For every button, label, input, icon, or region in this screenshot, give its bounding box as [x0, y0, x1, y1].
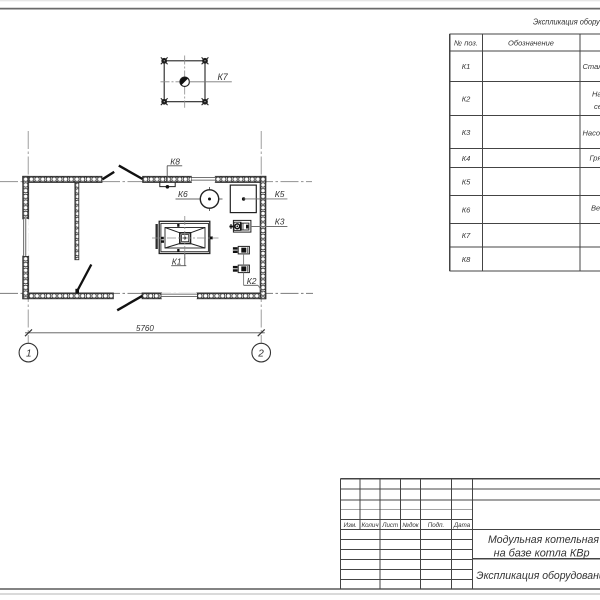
svg-text:Лист: Лист	[381, 522, 398, 529]
svg-text:№док: №док	[402, 522, 420, 529]
svg-text:Грязевик: Грязевик	[590, 154, 600, 163]
svg-text:Колич: Колич	[361, 522, 379, 529]
svg-text:К2: К2	[462, 94, 471, 103]
svg-text:5760: 5760	[136, 324, 154, 333]
svg-text:Обозначение: Обозначение	[508, 39, 554, 48]
svg-text:К2: К2	[247, 276, 257, 286]
svg-text:Экспликация оборудования: Экспликация оборудования	[476, 570, 600, 582]
svg-text:Изм.: Изм.	[344, 522, 357, 529]
svg-text:К5: К5	[462, 177, 471, 186]
svg-text:Экспликация оборудования: Экспликация оборудования	[533, 17, 600, 27]
svg-text:1: 1	[26, 348, 32, 359]
svg-text:К3: К3	[462, 128, 471, 137]
svg-text:Вентилятор: Вентилятор	[591, 204, 600, 213]
svg-text:сет: сет	[594, 102, 600, 111]
svg-text:Насос: Насос	[592, 89, 600, 98]
svg-text:2: 2	[257, 348, 264, 359]
svg-text:Дата: Дата	[453, 522, 471, 529]
svg-text:Подп.: Подп.	[428, 522, 444, 529]
svg-text:№ поз.: № поз.	[454, 39, 478, 48]
svg-text:К3: К3	[275, 216, 285, 226]
svg-text:К8: К8	[170, 157, 180, 167]
svg-text:К7: К7	[218, 72, 229, 82]
svg-text:К6: К6	[462, 205, 471, 214]
svg-text:Стальной котел: Стальной котел	[583, 62, 600, 71]
svg-text:К4: К4	[462, 154, 471, 163]
svg-text:К7: К7	[462, 231, 471, 240]
svg-text:К1: К1	[172, 256, 182, 266]
svg-text:Модульная котельная: Модульная котельная	[488, 534, 599, 546]
svg-text:Насос подпиточный: Насос подпиточный	[583, 129, 600, 138]
svg-text:на базе котла КВр: на базе котла КВр	[494, 547, 590, 559]
svg-text:К6: К6	[178, 189, 188, 199]
svg-text:К8: К8	[462, 255, 471, 264]
svg-text:К1: К1	[462, 62, 471, 71]
svg-text:К5: К5	[275, 189, 285, 199]
